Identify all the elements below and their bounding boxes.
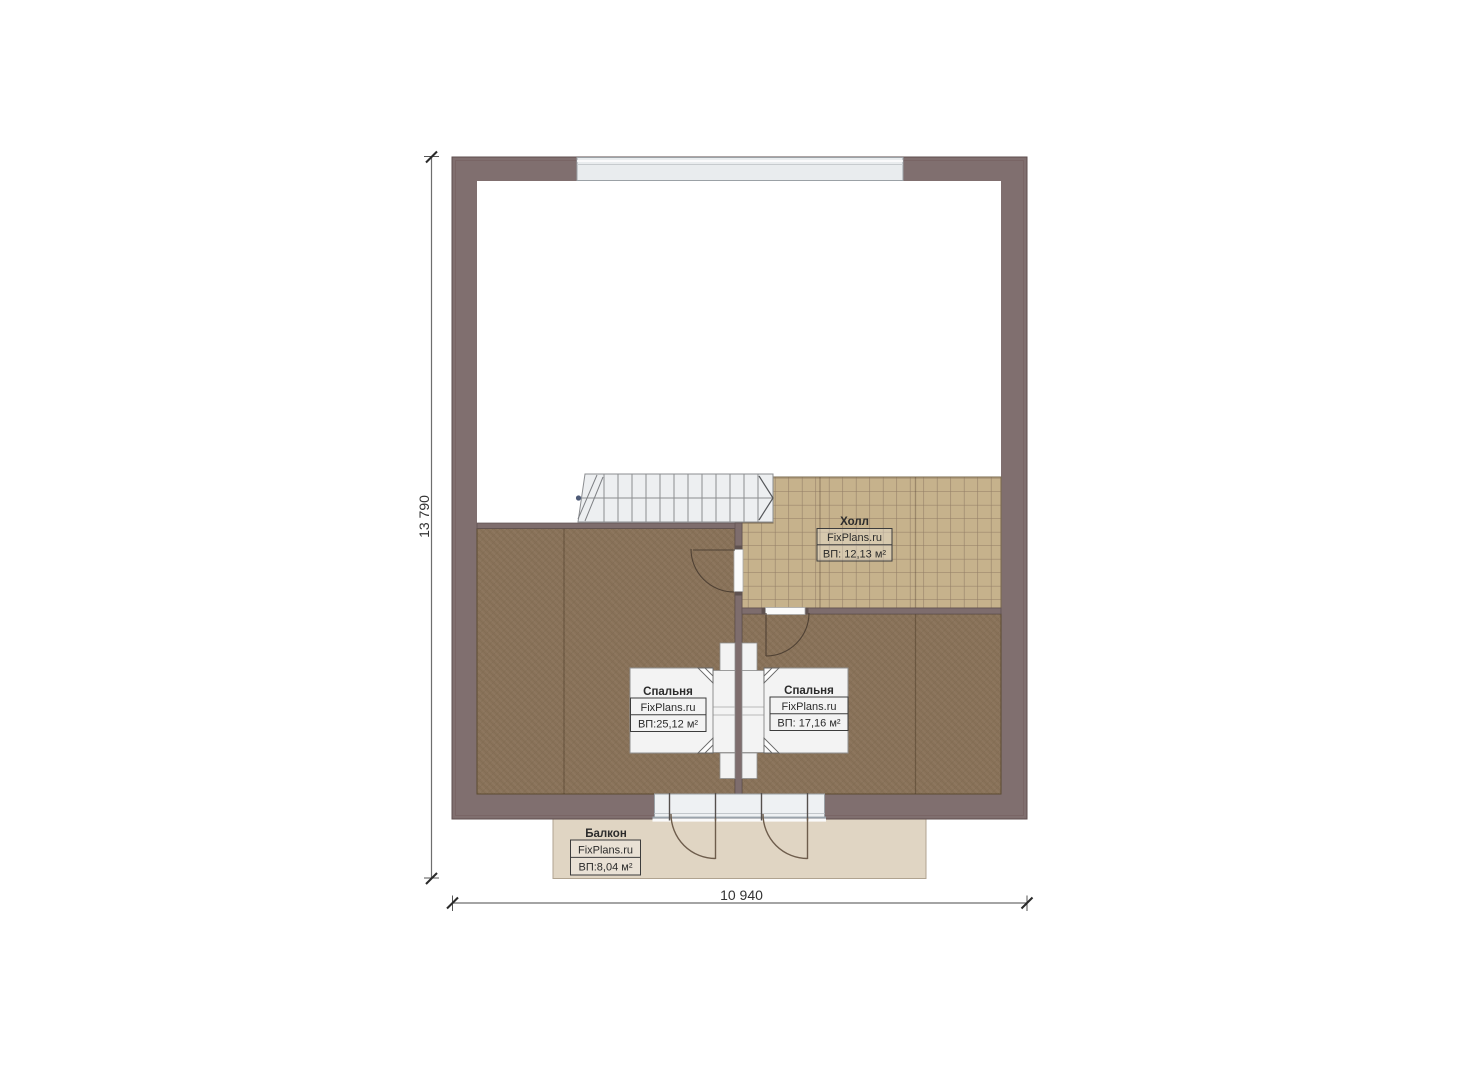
svg-text:FixPlans.ru: FixPlans.ru xyxy=(827,532,882,544)
svg-text:ВП:25,12 м²: ВП:25,12 м² xyxy=(638,719,698,731)
svg-text:13 790: 13 790 xyxy=(416,495,432,538)
svg-text:ВП: 17,16 м²: ВП: 17,16 м² xyxy=(777,718,841,730)
svg-text:FixPlans.ru: FixPlans.ru xyxy=(578,845,633,857)
svg-text:Балкон: Балкон xyxy=(585,828,627,840)
svg-text:FixPlans.ru: FixPlans.ru xyxy=(640,702,695,714)
svg-text:ВП:8,04 м²: ВП:8,04 м² xyxy=(579,862,633,874)
svg-text:Спальня: Спальня xyxy=(643,686,693,698)
svg-text:FixPlans.ru: FixPlans.ru xyxy=(781,701,836,713)
svg-text:ВП: 12,13 м²: ВП: 12,13 м² xyxy=(823,549,887,561)
svg-text:Спальня: Спальня xyxy=(784,685,834,697)
svg-text:Холл: Холл xyxy=(840,516,869,528)
svg-text:10 940: 10 940 xyxy=(720,887,763,903)
